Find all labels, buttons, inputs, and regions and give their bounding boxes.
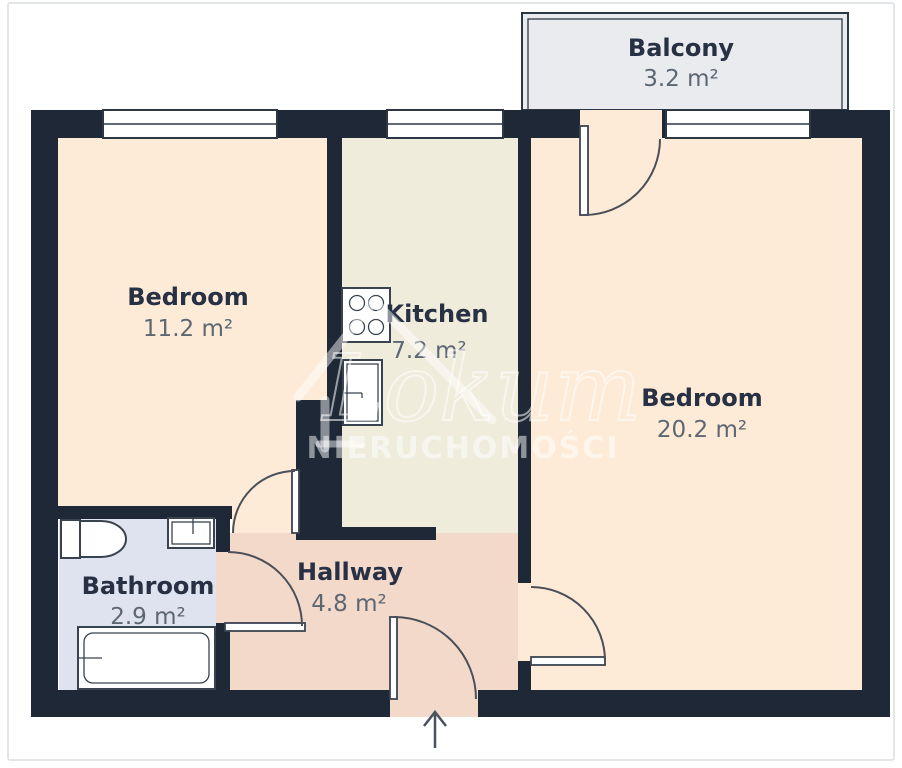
bathroom-sink-icon: [168, 518, 214, 548]
door-entrance-leaf: [390, 617, 397, 699]
wall-exterior-left: [31, 110, 58, 717]
room-area-bedroom-1: 11.2 m²: [143, 316, 233, 342]
room-area-balcony: 3.2 m²: [643, 66, 719, 92]
bathtub-icon: [78, 627, 215, 689]
wall-bathroom-right-lower: [216, 623, 230, 690]
door-bedroom-1-leaf: [292, 470, 299, 533]
entrance-arrow-icon: [424, 712, 446, 748]
floor-plan-page: Balcony 3.2 m² Bedroom 11.2 m² Kitchen 7…: [0, 0, 902, 768]
wall-kitchen-bottom: [342, 527, 436, 540]
wall-bedroom2-left-lower: [518, 661, 531, 690]
wall-exterior-right: [862, 110, 890, 717]
doorway-bedroom-2: [518, 583, 531, 661]
door-balcony-leaf: [580, 126, 588, 215]
room-label-bedroom-1: Bedroom: [127, 283, 249, 311]
floor-plan-drawing: Balcony 3.2 m² Bedroom 11.2 m² Kitchen 7…: [0, 0, 902, 768]
door-bathroom-leaf: [225, 623, 305, 631]
toilet-icon: [61, 520, 126, 558]
doorway-bathroom: [216, 552, 230, 623]
room-area-bedroom-2: 20.2 m²: [657, 417, 747, 443]
doorway-balcony: [580, 110, 662, 138]
room-area-hallway: 4.8 m²: [311, 591, 387, 617]
room-label-bathroom: Bathroom: [82, 572, 215, 600]
room-label-hallway: Hallway: [297, 558, 403, 586]
room-area-bathroom: 2.9 m²: [110, 604, 186, 630]
watermark-subtitle-text: NIERUCHOMOŚCI: [307, 429, 620, 466]
watermark-brand-text: Lokum: [321, 335, 642, 442]
door-bedroom-2-leaf: [531, 657, 605, 665]
room-label-bedroom-2: Bedroom: [641, 384, 763, 412]
windows: [103, 110, 810, 138]
room-label-balcony: Balcony: [628, 34, 735, 62]
wall-bathroom-right-upper: [216, 519, 230, 552]
